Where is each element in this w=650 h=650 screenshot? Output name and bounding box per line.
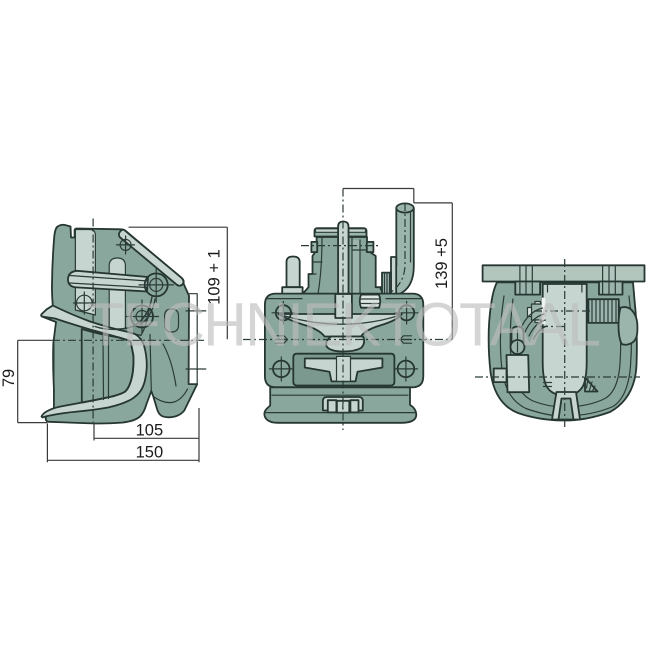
svg-text:79: 79: [0, 369, 18, 387]
svg-text:TECHNIEKTOTAAL: TECHNIEKTOTAAL: [87, 291, 599, 359]
svg-text:105: 105: [136, 422, 164, 440]
svg-text:139 +5: 139 +5: [433, 238, 451, 289]
svg-text:150: 150: [136, 444, 164, 462]
